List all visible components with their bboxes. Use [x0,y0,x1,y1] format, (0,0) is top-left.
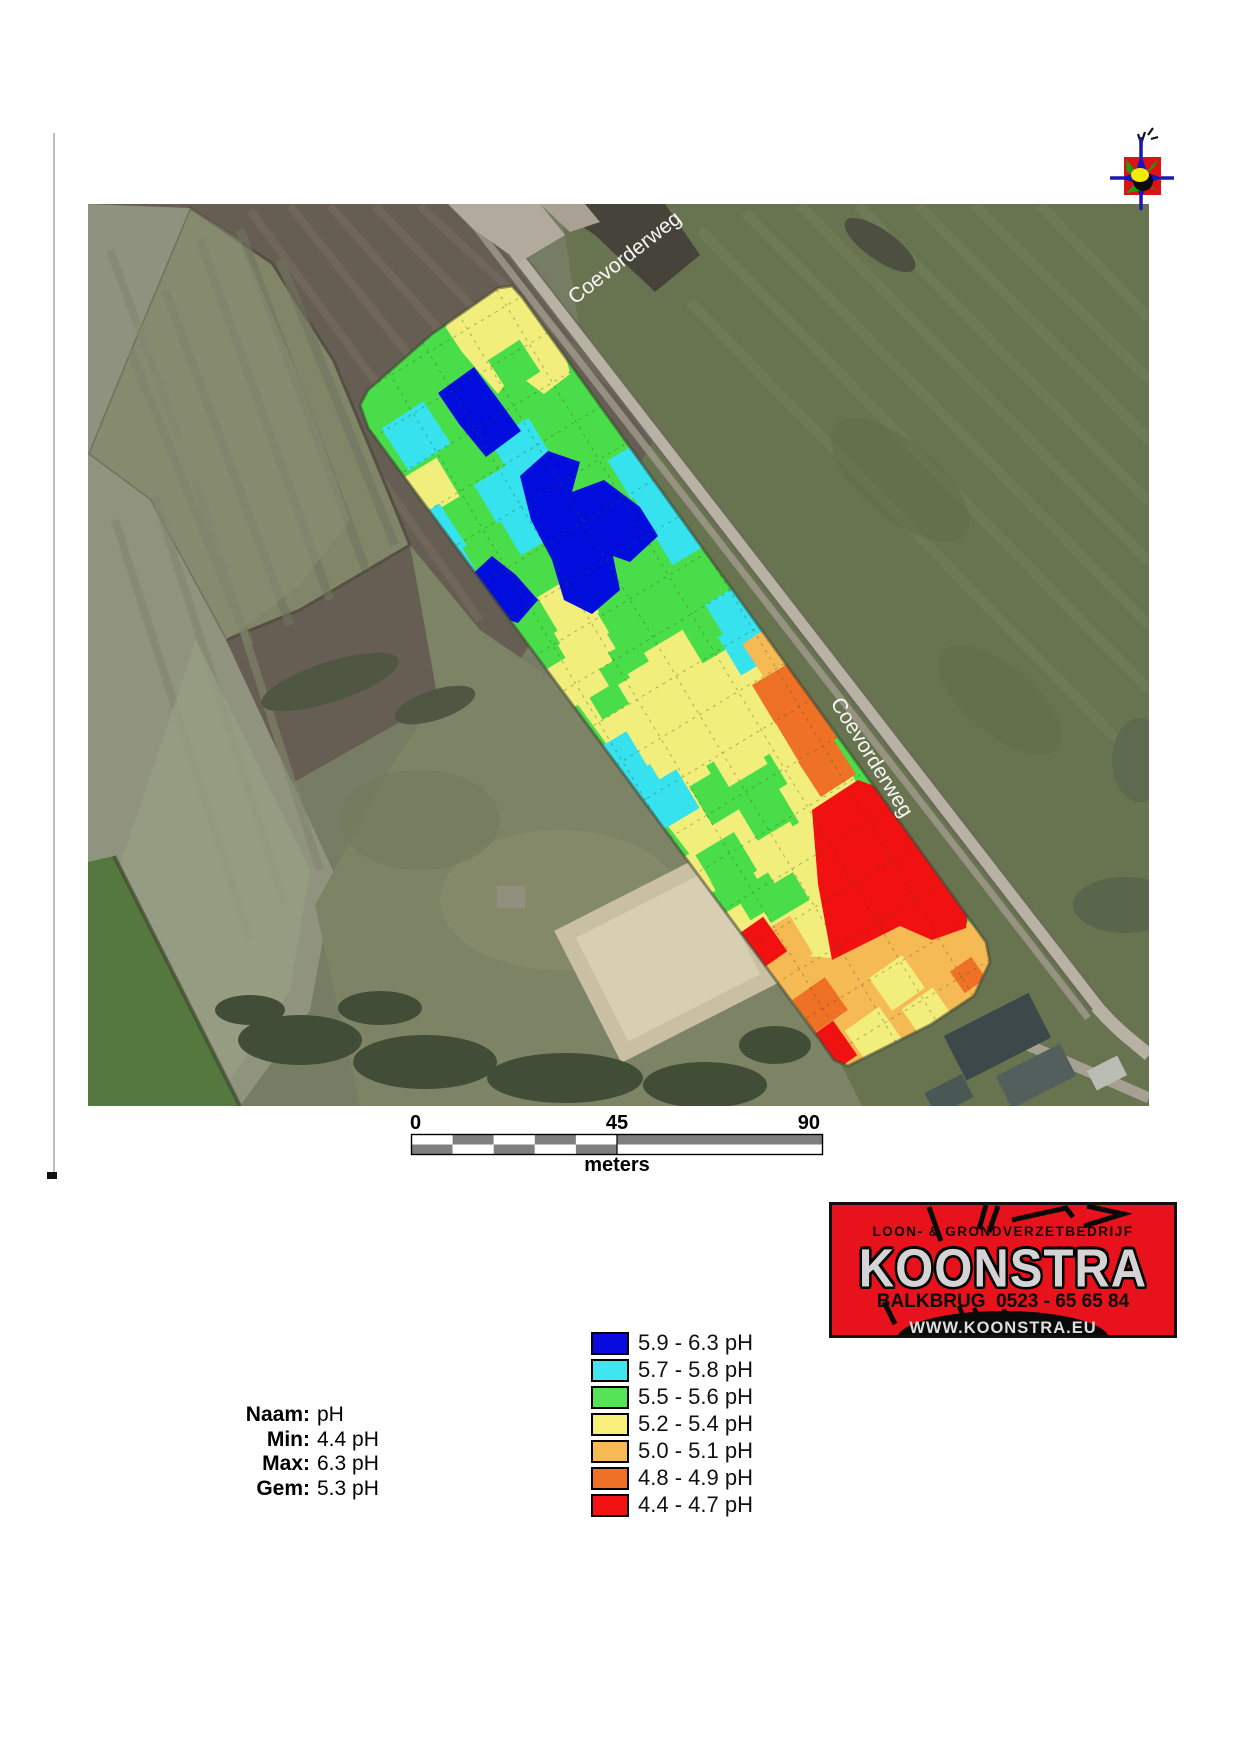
svg-text:meters: meters [584,1154,650,1176]
svg-text:90: 90 [798,1112,820,1134]
svg-text:0: 0 [410,1112,421,1134]
svg-text:45: 45 [606,1112,628,1134]
svg-text:WWW.KOONSTRA.EU: WWW.KOONSTRA.EU [909,1319,1096,1335]
